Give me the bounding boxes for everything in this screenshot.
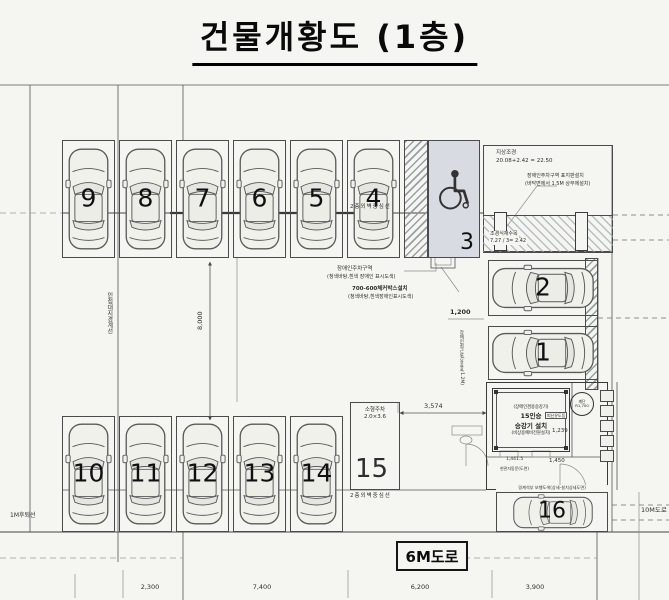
parking-spot-15: 소형주차 2.0×3.6 15 (350, 402, 400, 490)
parking-spot-9: 9 (62, 140, 115, 258)
spot-number: 6 (234, 183, 285, 212)
elevator-note-4: (비상용예비전원설치) (512, 430, 551, 436)
road-label-10m: 10M도로 (641, 506, 667, 514)
door-note: 현관자동문(도면) (500, 466, 529, 471)
elevator-cab: (장애인겸용승강기) 15인승 승강기 설치 (비상용예비전원설치) (496, 392, 566, 448)
parking-spot-10: 10 (62, 416, 115, 532)
boundary-label-left: 인접대지경계선 (105, 292, 113, 388)
parking-spot-6: 6 (233, 140, 286, 258)
spot-number: 12 (177, 458, 228, 487)
stair-circle: 계단 R1,700 (570, 392, 594, 416)
parking-spot-2: 2 (488, 260, 598, 316)
spot-number: 14 (291, 458, 342, 487)
bike-rack (600, 405, 614, 417)
sign-note-2: (바닥면에서 1.5M 상부에설치) (525, 181, 590, 188)
landscape-calc: 20.08+2.42 = 22.50 (496, 158, 552, 165)
access-note: 장애인접근로(유효폭1.2M) (458, 330, 464, 402)
spot-number: 1 (489, 337, 597, 366)
door-arc-entrance (466, 444, 488, 466)
bottom-dim-7400: 7,400 (242, 583, 282, 591)
dimension-1441: 1,441.5 (506, 457, 523, 463)
leader-box-note (441, 267, 459, 292)
leader-disabled-note (404, 263, 436, 271)
bike-rack (600, 435, 614, 447)
bottom-dim-6200: 6,200 (400, 583, 440, 591)
stair-radius: R1,700 (575, 404, 589, 408)
spot-number: 2 (489, 272, 597, 301)
parking-spot-5: 5 (290, 140, 343, 258)
tree-note-1: 조경식재수목 (489, 231, 519, 238)
tree-note-2: 7.27 / 3= 2.42 (489, 238, 527, 245)
page-title: 건물개황도 (1층) (192, 12, 477, 66)
bike-rack (600, 450, 614, 462)
parking-spot-3-accessible: 3 (428, 140, 480, 258)
disabled-note-1: 장애인주차구역 (337, 266, 372, 273)
parking-spot-4: 4 (347, 140, 400, 258)
small-parking-size: 2.0×3.6 (351, 414, 399, 421)
wall-centerline-top-label: 2층외벽중심선 (350, 204, 391, 211)
spot-number: 10 (63, 458, 114, 487)
elevator-note-3: 승강기 설치 (515, 420, 547, 430)
disabled-note-2: (청색바탕,흰색 장애인 표시도색) (327, 274, 395, 281)
dimension-1200: 1,200 (450, 308, 471, 316)
spot-number: 5 (291, 183, 342, 212)
parking-spot-8: 8 (119, 140, 172, 258)
dimension-8000: 8,000 (196, 311, 204, 330)
dimension-3574: 3,574 (424, 402, 443, 410)
wall-centerline-bottom-label: 2층외벽중심선 (350, 493, 391, 500)
elevator-room: (장애인겸용승강기) 15인승 승강기 설치 (비상용예비전원설치) (492, 388, 570, 452)
parking-spot-12: 12 (176, 416, 229, 532)
spot-number: 13 (234, 458, 285, 487)
exit-sign-note: 피난유도등 (545, 412, 567, 419)
landscape-title: 지상조경 (496, 150, 516, 157)
spot-number: 8 (120, 183, 171, 212)
hatched-strip (404, 140, 428, 258)
box-note-1: 700-600체커박스설치 (352, 286, 408, 293)
spot-number: 7 (177, 183, 228, 212)
parking-spot-1: 1 (488, 326, 598, 380)
dimension-1239: 1,239 (552, 428, 568, 435)
planter-box (575, 212, 588, 251)
box-note-2: (청색바탕,흰색장애인표시도색) (348, 294, 413, 301)
walkway-paint-note: 경계석부 보행도색(상세-설치상세도면) (496, 485, 608, 490)
site-plan-sheet: 건물개황도 (1층) (0, 0, 669, 600)
spot-number: 15 (355, 453, 388, 487)
parking-spot-11: 11 (119, 416, 172, 532)
wheelchair-icon (436, 167, 472, 213)
spot-number: 9 (63, 183, 114, 212)
sign-note-1: 장애인주차구역 표지판설치 (527, 173, 584, 180)
bottom-dim-2300: 2,300 (130, 583, 170, 591)
spot-number: 16 (497, 499, 607, 524)
parking-spot-13: 13 (233, 416, 286, 532)
bike-rack (600, 420, 614, 432)
parking-spot-14: 14 (290, 416, 343, 532)
bike-rack (600, 390, 614, 402)
setback-label: 1M후퇴선 (10, 512, 36, 520)
elevator-note-2: 15인승 (520, 410, 541, 420)
parking-spot-7: 7 (176, 140, 229, 258)
dimension-1450: 1,450 (549, 458, 565, 465)
spot-number: 3 (460, 230, 474, 255)
bottom-dim-3900: 3,900 (515, 583, 555, 591)
parking-spot-16: 16 (496, 492, 608, 532)
spot-number: 11 (120, 458, 171, 487)
road-label-6m: 6M도로 (396, 541, 468, 571)
